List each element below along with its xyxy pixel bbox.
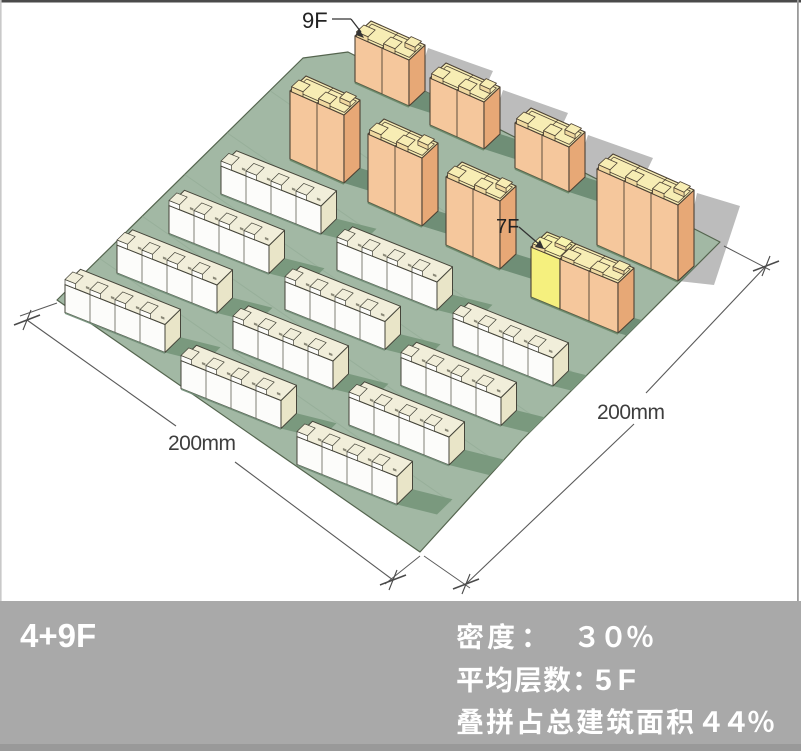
svg-text:200mm: 200mm xyxy=(168,432,236,455)
svg-text:7F: 7F xyxy=(496,216,519,238)
svg-text:9F: 9F xyxy=(302,8,328,33)
svg-text:200mm: 200mm xyxy=(597,401,665,424)
svg-text:4+9F: 4+9F xyxy=(20,617,96,654)
svg-text:5F: 5F xyxy=(595,664,642,697)
